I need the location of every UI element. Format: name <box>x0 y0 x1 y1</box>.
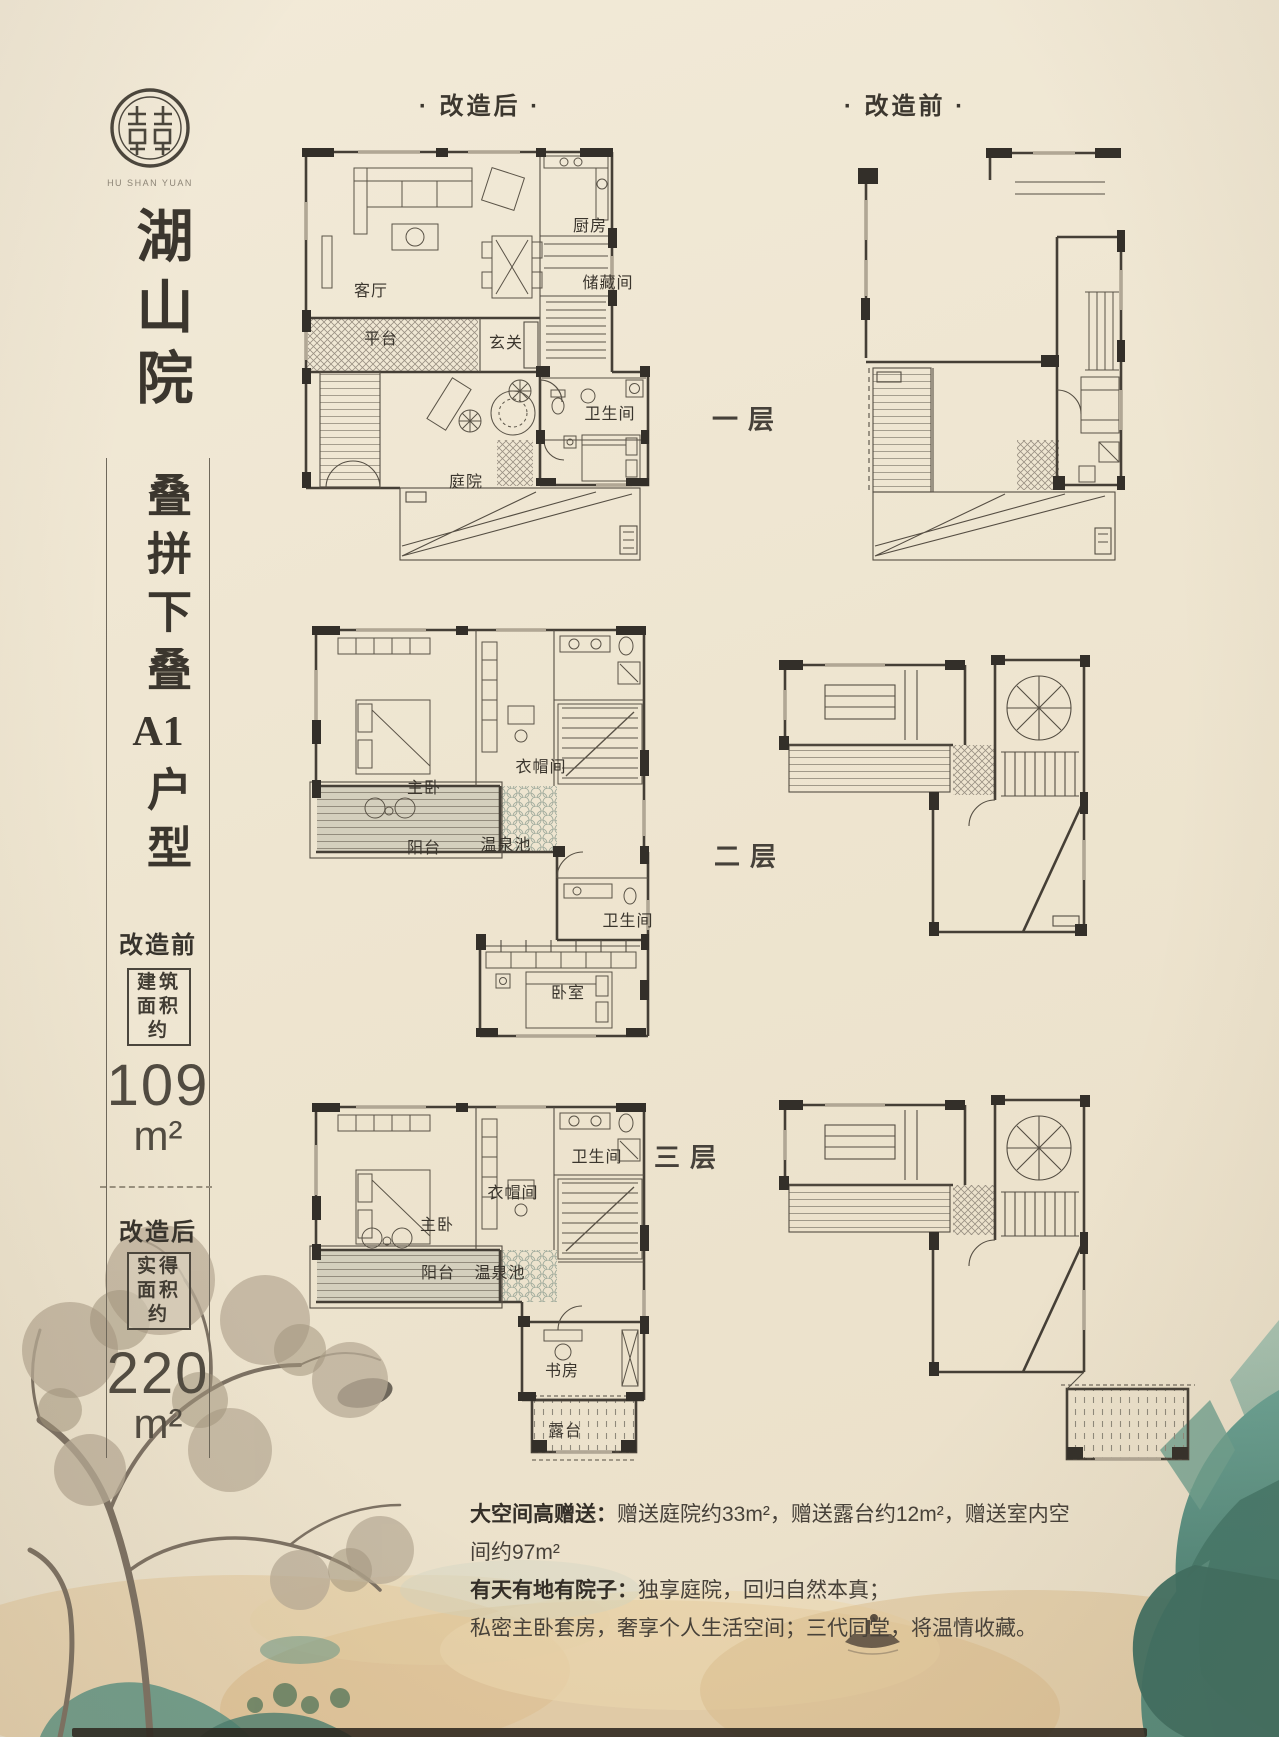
room-label-kitchen: 厨房 <box>573 212 607 236</box>
footer-line-2-label: 有天有地有院子： <box>470 1579 638 1602</box>
room-label-cloak-f3: 衣帽间 <box>487 1179 538 1203</box>
floor-label-2: 二层 <box>714 837 786 874</box>
room-label-platform: 平台 <box>364 325 398 349</box>
room-label-bedroom-f2: 卧室 <box>551 979 585 1003</box>
room-label-spring-f3: 温泉池 <box>474 1259 525 1283</box>
room-label-balcony-f2: 阳台 <box>407 834 441 858</box>
room-label-foyer: 玄关 <box>489 329 523 353</box>
area-box-word: 建筑 <box>137 972 181 994</box>
floor-label-1: 一层 <box>712 400 784 437</box>
room-label-courtyard: 庭院 <box>449 468 483 492</box>
room-label-cloak-f2: 衣帽间 <box>515 753 566 777</box>
project-name: 湖山院 <box>118 206 200 419</box>
room-label-bath-f2: 卫生间 <box>602 907 653 931</box>
sidebar-divider <box>100 1186 212 1188</box>
plan-before-f1 <box>858 148 1125 560</box>
footer-text: 大空间高赠送：赠送庭院约33m²，赠送露台约12m²，赠送室内空间约97m² 有… <box>470 1496 1090 1648</box>
area-box-word: 面积 <box>137 996 181 1018</box>
plan-before-f3 <box>779 1095 1195 1459</box>
product-type: 叠拼下叠 <box>133 472 198 704</box>
unit-code: A1 <box>85 708 231 756</box>
area-box-word: 实得 <box>137 1256 181 1278</box>
area-box-word: 约 <box>148 1304 170 1326</box>
room-label-bath-f3: 卫生间 <box>571 1143 622 1167</box>
after-reno-label: 改造后 <box>85 1212 231 1247</box>
after-area-unit: m² <box>85 1400 231 1448</box>
room-label-living: 客厅 <box>354 277 388 301</box>
footer-line-3-text: 私密主卧套房，奢享个人生活空间；三代同堂，将温情收藏。 <box>470 1617 1037 1640</box>
header-after: · 改造后 · <box>419 86 541 121</box>
photo-edge <box>72 1728 1147 1737</box>
room-label-master-f3: 主卧 <box>420 1211 454 1235</box>
brand-caption: HU SHAN YUAN <box>85 178 215 188</box>
area-box-word: 面积 <box>137 1280 181 1302</box>
before-area-value: 109 <box>85 1052 231 1119</box>
brand-logo <box>108 86 192 170</box>
area-box-word: 约 <box>148 1020 170 1042</box>
footer-line-2-text: 独享庭院，回归自然本真； <box>638 1579 890 1602</box>
seal-icon <box>108 86 192 170</box>
footer-line-1: 大空间高赠送：赠送庭院约33m²，赠送露台约12m²，赠送室内空间约97m² <box>470 1496 1090 1572</box>
poster-page: HU SHAN YUAN 湖山院 叠拼下叠 A1 户型 改造前 建筑 面积 约 … <box>0 0 1279 1737</box>
floor-label-3: 三层 <box>654 1138 726 1175</box>
room-label-storage: 储藏间 <box>582 269 633 293</box>
before-reno-label: 改造前 <box>85 925 231 960</box>
room-label-study: 书房 <box>545 1357 579 1381</box>
room-label-balcony-f3: 阳台 <box>421 1259 455 1283</box>
plan-before-f2 <box>779 655 1090 936</box>
footer-line-3: 私密主卧套房，奢享个人生活空间；三代同堂，将温情收藏。 <box>470 1610 1090 1648</box>
before-area-unit: m² <box>85 1112 231 1160</box>
unit-suffix: 户型 <box>133 766 198 882</box>
before-area-box: 建筑 面积 约 <box>127 968 191 1046</box>
room-label-master-f2: 主卧 <box>407 774 441 798</box>
footer-line-1-label: 大空间高赠送： <box>470 1503 617 1526</box>
footer-line-2: 有天有地有院子：独享庭院，回归自然本真； <box>470 1572 1090 1610</box>
after-area-value: 220 <box>85 1340 231 1407</box>
room-label-bath-f1: 卫生间 <box>584 400 635 424</box>
header-before: · 改造前 · <box>844 86 966 121</box>
plan-after-f1 <box>302 148 650 560</box>
room-label-terrace: 露台 <box>548 1417 582 1441</box>
after-area-box: 实得 面积 约 <box>127 1252 191 1330</box>
room-label-spring-f2: 温泉池 <box>480 831 531 855</box>
